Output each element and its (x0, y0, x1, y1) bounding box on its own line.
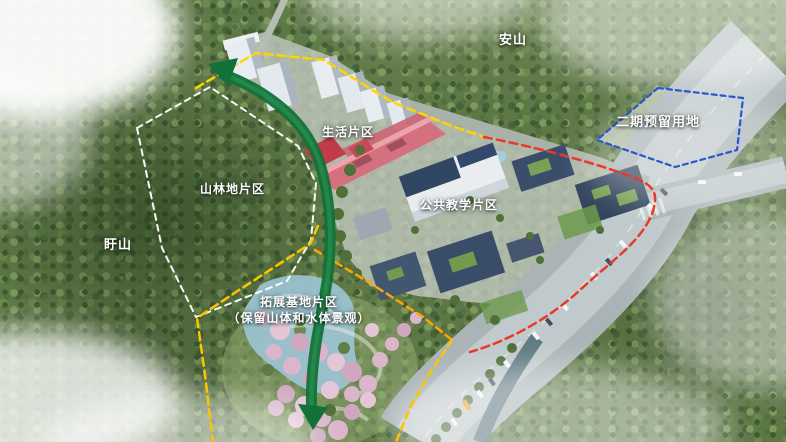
label-expansion-base-zone-line2: （保留山体和水体景观） (196, 310, 402, 326)
label-expansion-base-zone-line1: 拓展基地片区 (196, 294, 402, 310)
label-expansion-base-zone: 拓展基地片区 （保留山体和水体景观） (196, 294, 402, 326)
label-public-teaching-zone: 公共教学片区 (420, 196, 498, 213)
label-living-zone: 生活片区 (322, 123, 374, 140)
label-mountain-xushan: 盱山 (104, 234, 132, 253)
master-plan-rendering: 安山 盱山 二期预留用地 生活片区 山林地片区 公共教学片区 拓展基地片区 （保… (0, 0, 786, 442)
label-mountain-anshan: 安山 (499, 29, 527, 48)
label-mountain-forest-zone: 山林地片区 (200, 180, 265, 197)
label-phase2-reserved-land: 二期预留用地 (616, 111, 700, 130)
